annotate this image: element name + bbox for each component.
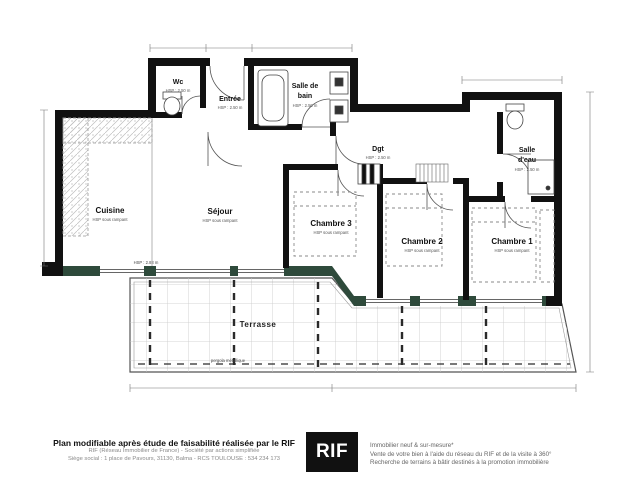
footer-service-1: Immobilier neuf & sur-mesure* xyxy=(370,442,630,451)
cuisine-label: Cuisine xyxy=(96,206,125,215)
room-chambre2: Chambre 2 HSP sous rampant xyxy=(401,237,443,253)
bathroom-basins xyxy=(330,72,348,122)
chambre3-label: Chambre 3 xyxy=(310,219,352,228)
salle-deau-label-1: Salle xyxy=(519,147,535,154)
footer-left-block: Plan modifiable après étude de faisabili… xyxy=(36,438,312,463)
terrasse-label: Terrasse xyxy=(240,320,277,329)
room-sejour: Séjour HSP sous rampant xyxy=(202,207,238,223)
floor-plan-page: Terrasse pergola métallique xyxy=(0,0,640,480)
shower xyxy=(528,160,554,194)
technical-shaft xyxy=(358,164,380,184)
room-salle-deau: Salle d'eau HSP : 2.50 m xyxy=(515,147,540,172)
chambre1-hsp: HSP sous rampant xyxy=(494,248,530,253)
sejour-hsp: HSP sous rampant xyxy=(202,218,238,223)
footer-service-3: Recherche de terrains à bâtir destinés à… xyxy=(370,459,630,468)
footer-service-2: Vente de votre bien à l'aide du réseau d… xyxy=(370,451,630,460)
bathtub xyxy=(258,70,288,126)
room-chambre3: Chambre 3 HSP sous rampant xyxy=(310,219,352,235)
salle-deau-hsp: HSP : 2.50 m xyxy=(515,167,540,172)
chambre1-label: Chambre 1 xyxy=(491,237,533,246)
footer-company-line: RIF (Réseau Immobilier de France) - Soci… xyxy=(36,448,312,456)
room-chambre1: Chambre 1 HSP sous rampant xyxy=(491,237,533,253)
chambre2-hsp: HSP sous rampant xyxy=(404,248,440,253)
dgt-label: Dgt xyxy=(372,146,384,153)
wardrobe-chambre1 xyxy=(540,210,554,282)
room-cuisine: Cuisine HSP sous rampant xyxy=(92,206,128,222)
cuisine-hsp: HSP sous rampant xyxy=(92,217,128,222)
rif-logo: RIF xyxy=(306,432,358,472)
room-salle-de-bain: Salle de bain HSP : 2.50 m xyxy=(292,83,319,108)
radiator xyxy=(416,164,448,182)
bed-chambre2 xyxy=(386,194,442,266)
facade-hsp-note: HSP : 2.83 m xyxy=(134,260,159,265)
rif-logo-text: RIF xyxy=(316,441,348,463)
room-wc: Wc HSP : 2.50 m xyxy=(166,79,191,93)
footer: Plan modifiable après étude de faisabili… xyxy=(0,430,640,480)
sejour-label: Séjour xyxy=(208,207,233,216)
footer-address-line: Siège social : 1 place de Pavours, 31130… xyxy=(36,456,312,464)
dgt-hsp: HSP : 2.50 m xyxy=(366,155,391,160)
room-entree: Entrée HSP : 2.50 m xyxy=(218,96,243,110)
chambre3-hsp: HSP sous rampant xyxy=(313,230,349,235)
salle-deau-label-2: d'eau xyxy=(518,157,536,164)
room-dgt: Dgt HSP : 2.50 m xyxy=(366,146,391,160)
furniture xyxy=(163,70,554,194)
pergola-note: pergola métallique xyxy=(211,358,246,363)
salle-de-bain-hsp: HSP : 2.50 m xyxy=(293,103,318,108)
terrace: Terrasse pergola métallique xyxy=(120,270,590,380)
floor-plan-drawing: Terrasse pergola métallique xyxy=(0,0,640,430)
wc-toilet xyxy=(163,92,181,115)
footer-title: Plan modifiable après étude de faisabili… xyxy=(36,438,312,448)
footer-right-block: Immobilier neuf & sur-mesure* Vente de v… xyxy=(370,442,630,468)
salle-de-bain-label-2: bain xyxy=(298,93,312,100)
wc-label: Wc xyxy=(173,79,184,86)
entree-hsp: HSP : 2.50 m xyxy=(218,105,243,110)
entree-label: Entrée xyxy=(219,96,241,103)
salle-de-bain-label-1: Salle de xyxy=(292,83,319,90)
salle-deau-toilet xyxy=(506,104,524,129)
wc-hsp: HSP : 2.50 m xyxy=(166,88,191,93)
chambre2-label: Chambre 2 xyxy=(401,237,443,246)
